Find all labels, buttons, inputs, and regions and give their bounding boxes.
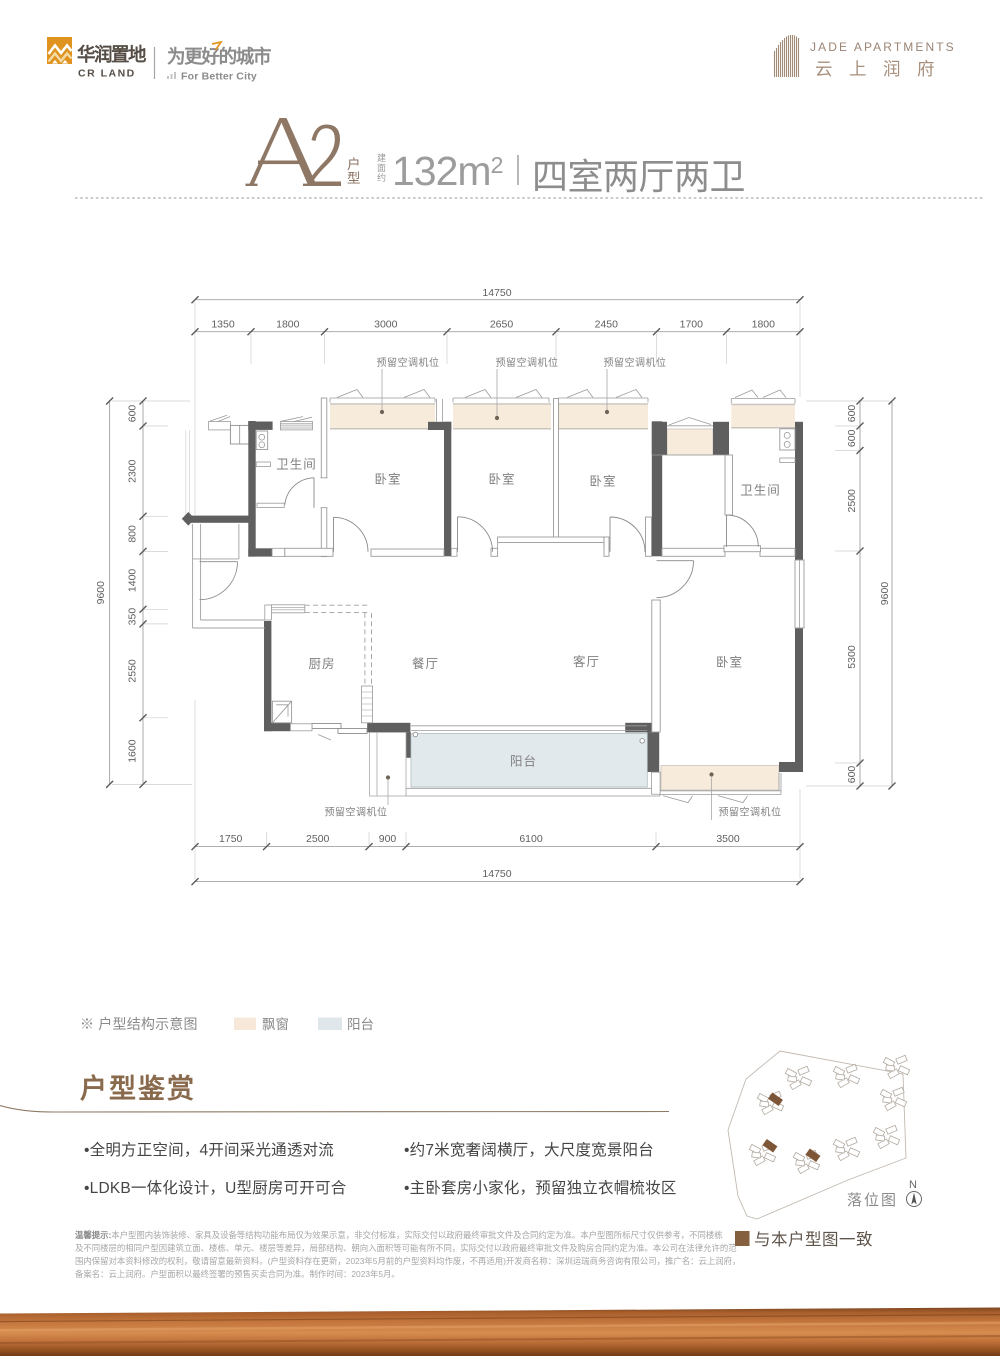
svg-text:3000: 3000 <box>374 319 398 331</box>
svg-text:※ 户型结构示意图: ※ 户型结构示意图 <box>80 1016 198 1032</box>
svg-text:2500: 2500 <box>306 833 330 845</box>
svg-text:9600: 9600 <box>95 581 107 605</box>
svg-text:卫生间: 卫生间 <box>740 484 781 498</box>
svg-text:卧室: 卧室 <box>488 472 515 487</box>
svg-text:14750: 14750 <box>482 287 511 299</box>
svg-text:预留空调机位: 预留空调机位 <box>377 356 440 369</box>
svg-text:1600: 1600 <box>127 739 139 763</box>
svg-text:1800: 1800 <box>752 319 776 331</box>
svg-text:2450: 2450 <box>595 319 619 331</box>
svg-text:5300: 5300 <box>846 645 858 669</box>
svg-text:600: 600 <box>846 766 858 784</box>
svg-text:客厅: 客厅 <box>573 654 600 669</box>
svg-text:1750: 1750 <box>219 833 243 845</box>
svg-text:预留空调机位: 预留空调机位 <box>325 806 388 819</box>
svg-text:2550: 2550 <box>127 659 139 683</box>
svg-text:14750: 14750 <box>482 868 511 880</box>
svg-text:预留空调机位: 预留空调机位 <box>496 356 559 369</box>
svg-text:1700: 1700 <box>680 319 704 331</box>
svg-text:N: N <box>909 1179 917 1191</box>
svg-text:落位图: 落位图 <box>847 1192 898 1209</box>
svg-text:卫生间: 卫生间 <box>276 458 317 472</box>
svg-text:厨房: 厨房 <box>308 656 335 671</box>
svg-text:3500: 3500 <box>716 833 740 845</box>
svg-text:卧室: 卧室 <box>374 472 401 487</box>
svg-text:与本户型图一致: 与本户型图一致 <box>754 1230 873 1249</box>
svg-text:2500: 2500 <box>846 489 858 513</box>
svg-text:预留空调机位: 预留空调机位 <box>719 806 782 819</box>
svg-text:800: 800 <box>127 525 139 543</box>
svg-text:600: 600 <box>846 405 858 423</box>
svg-text:卧室: 卧室 <box>589 474 616 489</box>
svg-text:1400: 1400 <box>127 569 139 593</box>
svg-text:900: 900 <box>379 833 397 845</box>
svg-text:2300: 2300 <box>127 459 139 483</box>
svg-text:1350: 1350 <box>211 319 235 331</box>
svg-text:600: 600 <box>846 429 858 447</box>
svg-text:1800: 1800 <box>276 319 300 331</box>
svg-text:餐厅: 餐厅 <box>412 656 439 671</box>
svg-text:卧室: 卧室 <box>716 655 743 670</box>
svg-text:600: 600 <box>127 405 139 423</box>
svg-text:2650: 2650 <box>490 319 514 331</box>
svg-text:阳台: 阳台 <box>510 754 537 769</box>
svg-text:350: 350 <box>127 608 139 626</box>
svg-text:6100: 6100 <box>519 833 543 845</box>
svg-text:飘窗: 飘窗 <box>262 1016 289 1032</box>
svg-text:9600: 9600 <box>879 582 891 606</box>
svg-text:预留空调机位: 预留空调机位 <box>604 356 667 369</box>
svg-text:阳台: 阳台 <box>347 1017 374 1032</box>
